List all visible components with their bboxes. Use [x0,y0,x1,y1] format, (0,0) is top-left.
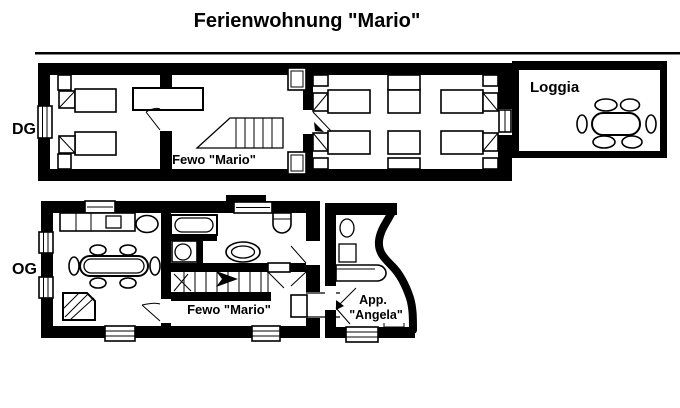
dg-apartment-label: Fewo "Mario" [172,152,256,167]
dg-window-left-icon [38,106,52,138]
floor-plan-page: Ferienwohnung "Mario" Loggia [0,0,680,408]
wardrobe-icon [388,131,420,169]
angela-step-icon [384,323,404,327]
og-window-left-icon [39,277,53,298]
bidet-icon [226,242,260,262]
floor-label-dg: DG [12,121,36,138]
og-apartment-label: Fewo "Mario" [187,302,271,317]
loggia: Loggia [512,61,667,158]
title-divider [35,52,680,55]
og-window-top-icon [234,202,272,213]
angela-label-line1: App. [359,293,387,307]
og-basin-divider [197,239,203,263]
loggia-table-icon [592,113,640,135]
angela-doorgap [325,286,336,310]
floor-plan-dg: Loggia [12,61,667,181]
washbasin-icon [172,241,197,262]
og-window-top-icon [85,201,115,213]
toilet-icon [273,213,291,233]
og-window-left-icon [39,232,53,253]
angela-wall-left [325,203,336,338]
og-wall-vertical-doorgap [161,299,171,323]
angela-label-line2: "Angela" [349,308,403,322]
page-title: Ferienwohnung "Mario" [194,10,421,32]
kitchen-sink-icon [136,216,158,233]
bathtub-icon [171,215,217,235]
wardrobe-icon [388,75,420,113]
dg-interior [50,75,498,169]
wardrobe-icon [133,88,203,110]
floor-label-og: OG [12,261,37,278]
loggia-label: Loggia [530,79,580,96]
dg-dormer-bottom-icon [288,152,306,174]
tiled-stove-icon [63,293,95,320]
og-window-bottom-icon [252,326,280,341]
og-window-bottom-icon [346,327,378,342]
og-stairs-band [171,292,271,301]
kitchen-counter-icon [60,213,135,231]
dg-wall-right-doorgap [303,110,313,134]
dining-table-icon [80,256,148,276]
loggia-door-icon [498,109,512,135]
apartment-angela: App. "Angela" [325,203,415,342]
floor-plan-canvas: Ferienwohnung "Mario" Loggia [0,0,680,408]
angela-wall-top [325,203,397,215]
floor-plan-og: Fewo "Mario" [12,195,415,342]
dg-dormer-top-icon [288,68,306,90]
og-window-bottom-icon [105,326,135,341]
